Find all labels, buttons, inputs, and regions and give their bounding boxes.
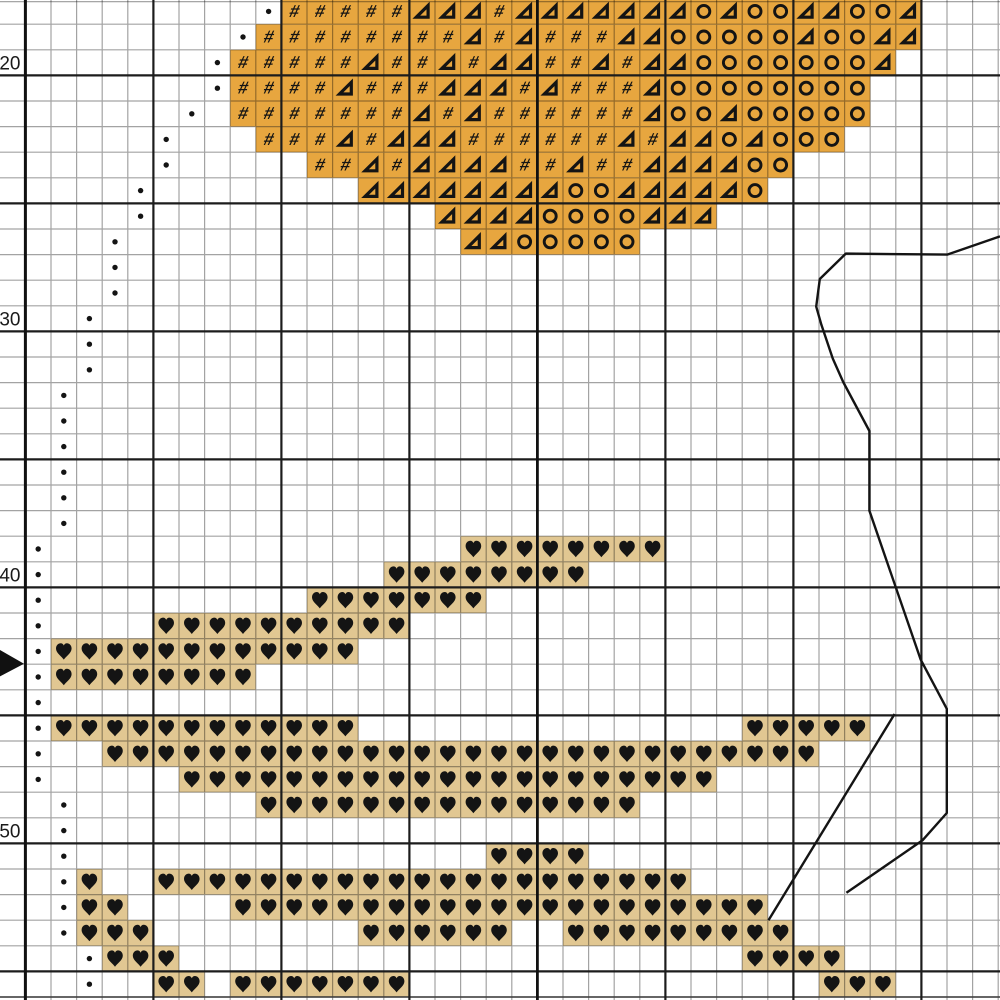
svg-text:50: 50 xyxy=(0,822,21,843)
svg-text:40: 40 xyxy=(0,566,21,587)
svg-text:30: 30 xyxy=(0,310,21,331)
svg-text:20: 20 xyxy=(0,54,21,75)
